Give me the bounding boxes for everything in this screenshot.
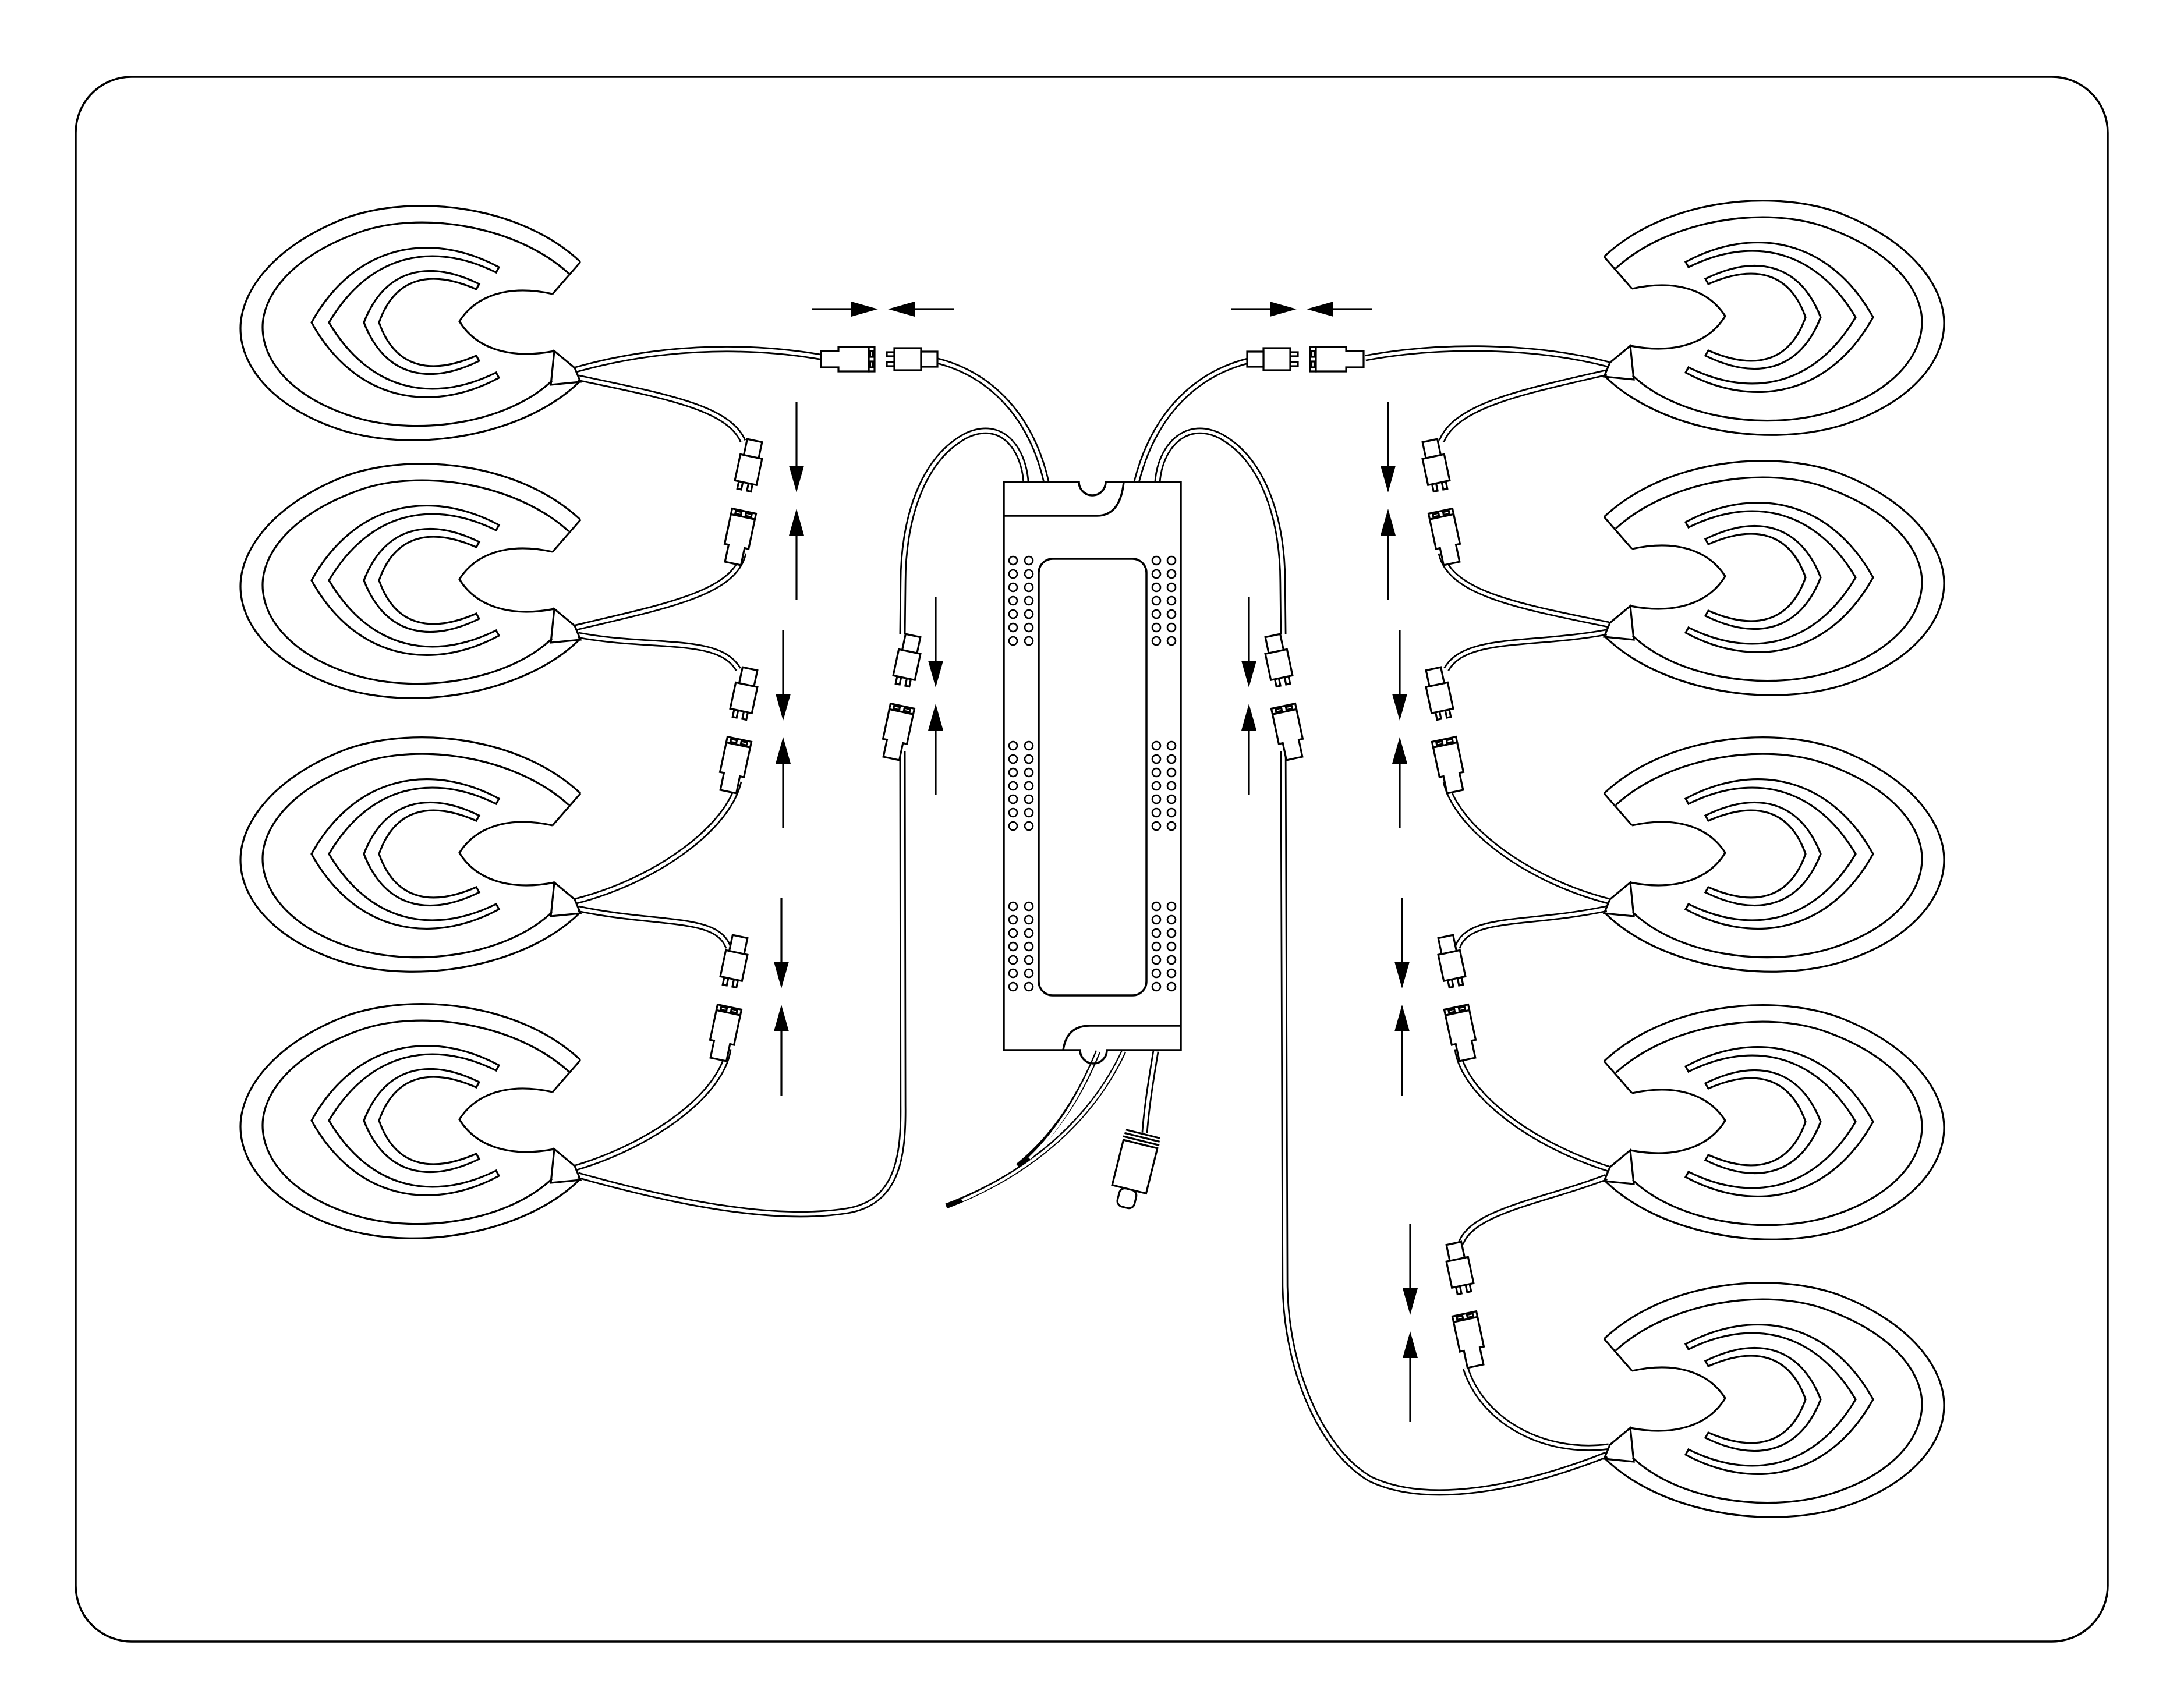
vent-hole <box>1167 942 1176 951</box>
arrow-left-icon <box>1307 302 1333 317</box>
arrow-up-icon <box>776 737 791 764</box>
insert-arrows-vertical <box>1394 898 1410 1096</box>
vent-hole <box>1009 782 1017 790</box>
vent-hole <box>1009 755 1017 763</box>
vent-hole <box>1152 768 1160 777</box>
insert-arrows-vertical <box>1403 1224 1418 1422</box>
vent-hole <box>1167 956 1176 964</box>
vent-hole <box>1009 983 1017 991</box>
mating-direction-arrows <box>774 302 1418 1422</box>
vent-hole <box>1167 610 1176 618</box>
pair-left-2 <box>716 667 760 794</box>
vent-hole <box>1152 610 1160 618</box>
vent-hole <box>1025 610 1033 618</box>
arrow-up-icon <box>789 509 804 536</box>
insert-arrows-horizontal <box>1231 302 1372 317</box>
pair-right-4-blade-connector <box>1443 1241 1475 1295</box>
vent-hole <box>1167 782 1176 790</box>
pair-left-2-blade-connector <box>728 667 760 721</box>
leaf-module-right-5 <box>1604 1283 1944 1518</box>
pair-left-3 <box>706 934 751 1062</box>
pair-right-3 <box>1435 934 1479 1062</box>
pair-left-1 <box>721 438 765 566</box>
arrow-up-icon <box>1392 737 1407 764</box>
arrow-down-icon <box>1381 466 1396 492</box>
diagram-page <box>0 0 2184 1698</box>
vent-hole <box>1167 623 1176 632</box>
vent-hole <box>1167 742 1176 750</box>
vent-hole <box>1167 583 1176 591</box>
vent-hole <box>1152 556 1160 565</box>
vent-hole <box>1009 822 1017 830</box>
vent-hole <box>1152 742 1160 750</box>
vent-hole <box>1009 610 1017 618</box>
pair-right-4 <box>1443 1241 1487 1369</box>
pair-top-right-blade-connector <box>1247 348 1298 370</box>
vent-hole <box>1152 637 1160 645</box>
wiring-diagram <box>0 0 2184 1698</box>
vent-hole <box>1025 768 1033 777</box>
vent-hole <box>1025 942 1033 951</box>
insert-arrows-vertical <box>928 597 943 795</box>
pair-right-1-blade-connector <box>1419 438 1451 492</box>
arrow-up-icon <box>1241 704 1256 731</box>
vent-hole <box>1167 556 1176 565</box>
arrow-up-icon <box>1381 509 1396 536</box>
vent-hole <box>1152 583 1160 591</box>
vent-hole <box>1152 755 1160 763</box>
vent-holes <box>1009 556 1176 991</box>
insert-arrows-vertical <box>774 898 789 1096</box>
vent-hole <box>1152 597 1160 605</box>
vent-hole <box>1152 782 1160 790</box>
pair-right-4-socket-connector <box>1452 1311 1487 1369</box>
vent-hole <box>1009 623 1017 632</box>
driver-box-panel <box>1039 559 1146 995</box>
driver-box-bottom-cap <box>1063 1026 1181 1050</box>
insert-arrows-vertical <box>1392 630 1407 828</box>
pair-driver-right-blade-connector <box>1262 633 1294 687</box>
vent-hole <box>1152 795 1160 803</box>
vent-hole <box>1009 795 1017 803</box>
pair-left-1-blade-connector <box>733 438 765 492</box>
vent-hole <box>1009 556 1017 565</box>
vent-hole <box>1025 570 1033 578</box>
vent-hole <box>1025 755 1033 763</box>
arrow-up-icon <box>1403 1331 1418 1358</box>
vent-hole <box>1167 929 1176 937</box>
vent-hole <box>1152 623 1160 632</box>
insert-arrows-horizontal <box>812 302 954 317</box>
arrow-up-icon <box>1394 1005 1410 1031</box>
pair-right-2-socket-connector <box>1432 737 1467 795</box>
vent-hole <box>1025 742 1033 750</box>
vent-hole <box>1152 902 1160 910</box>
vent-hole <box>1167 809 1176 817</box>
pair-top-left <box>821 347 937 371</box>
pair-driver-left-socket-connector <box>879 704 914 761</box>
vent-hole <box>1009 742 1017 750</box>
vent-hole <box>1167 969 1176 977</box>
arrow-left-icon <box>888 302 915 317</box>
pair-driver-left <box>879 633 923 761</box>
vent-hole <box>1152 570 1160 578</box>
arrow-down-icon <box>1392 694 1407 721</box>
vent-hole <box>1009 768 1017 777</box>
arrow-right-icon <box>1270 302 1297 317</box>
arrow-right-icon <box>851 302 878 317</box>
pair-right-3-socket-connector <box>1444 1005 1479 1062</box>
vent-hole <box>1152 983 1160 991</box>
vent-hole <box>1152 809 1160 817</box>
leaf-module-left-2 <box>240 464 580 699</box>
vent-hole <box>1167 637 1176 645</box>
vent-hole <box>1009 929 1017 937</box>
vent-hole <box>1025 822 1033 830</box>
vent-hole <box>1167 983 1176 991</box>
leaf-modules <box>240 201 1944 1518</box>
vent-hole <box>1025 782 1033 790</box>
vent-hole <box>1009 916 1017 924</box>
arrow-down-icon <box>774 962 789 988</box>
vent-hole <box>1152 929 1160 937</box>
vent-hole <box>1025 902 1033 910</box>
pair-top-left-blade-connector <box>887 348 937 370</box>
arrow-down-icon <box>1394 962 1410 988</box>
vent-hole <box>1152 969 1160 977</box>
vent-hole <box>1009 969 1017 977</box>
vent-hole <box>1167 755 1176 763</box>
vent-hole <box>1025 969 1033 977</box>
pair-right-2-blade-connector <box>1422 667 1454 721</box>
pair-right-2 <box>1422 667 1467 794</box>
pair-left-3-socket-connector <box>706 1005 741 1062</box>
vent-hole <box>1009 597 1017 605</box>
insert-arrows-vertical <box>1241 597 1256 795</box>
insert-arrows-vertical <box>1381 402 1396 600</box>
arrow-down-icon <box>1403 1288 1418 1315</box>
vent-hole <box>1152 956 1160 964</box>
vent-hole <box>1009 902 1017 910</box>
pair-right-1 <box>1419 438 1463 566</box>
pair-left-1-socket-connector <box>721 509 756 566</box>
vent-hole <box>1167 916 1176 924</box>
leaf-module-left-3 <box>240 738 580 972</box>
pair-top-left-socket-connector <box>821 347 875 371</box>
insert-arrows-vertical <box>789 402 804 600</box>
power-plug <box>1107 1129 1162 1212</box>
arrow-down-icon <box>1241 661 1256 687</box>
vent-hole <box>1025 929 1033 937</box>
arrow-down-icon <box>928 661 943 687</box>
vent-hole <box>1167 597 1176 605</box>
vent-hole <box>1025 623 1033 632</box>
vent-hole <box>1009 637 1017 645</box>
vent-hole <box>1025 637 1033 645</box>
arrow-down-icon <box>776 694 791 721</box>
leaf-module-right-2 <box>1604 461 1944 696</box>
pair-left-2-socket-connector <box>716 737 751 795</box>
pair-driver-left-blade-connector <box>891 633 923 687</box>
leaf-module-left-4 <box>240 1004 580 1239</box>
vent-hole <box>1167 822 1176 830</box>
vent-hole <box>1025 983 1033 991</box>
vent-hole <box>1025 809 1033 817</box>
vent-hole <box>1167 768 1176 777</box>
vent-hole <box>1025 956 1033 964</box>
vent-hole <box>1025 916 1033 924</box>
vent-hole <box>1025 583 1033 591</box>
leaf-module-right-4 <box>1604 1005 1944 1240</box>
pair-driver-right <box>1262 633 1306 761</box>
vent-hole <box>1009 570 1017 578</box>
pair-driver-right-socket-connector <box>1271 704 1306 761</box>
vent-hole <box>1025 795 1033 803</box>
vent-hole <box>1009 942 1017 951</box>
leaf-module-left-1 <box>240 206 580 441</box>
arrow-up-icon <box>928 704 943 731</box>
leaf-module-right-3 <box>1604 738 1944 972</box>
vent-hole <box>1009 956 1017 964</box>
vent-hole <box>1009 583 1017 591</box>
vent-hole <box>1009 809 1017 817</box>
vent-hole <box>1167 902 1176 910</box>
leaf-module-right-1 <box>1604 201 1944 435</box>
arrow-down-icon <box>789 466 804 492</box>
vent-hole <box>1152 916 1160 924</box>
arrow-up-icon <box>774 1005 789 1031</box>
pair-top-right-socket-connector <box>1310 347 1364 371</box>
pair-right-1-socket-connector <box>1428 509 1463 566</box>
driver-box <box>1004 482 1181 1064</box>
insert-arrows-vertical <box>776 630 791 828</box>
vent-hole <box>1025 556 1033 565</box>
pair-top-right <box>1247 347 1364 371</box>
vent-hole <box>1167 570 1176 578</box>
vent-hole <box>1167 795 1176 803</box>
vent-hole <box>1152 822 1160 830</box>
vent-hole <box>1025 597 1033 605</box>
vent-hole <box>1152 942 1160 951</box>
